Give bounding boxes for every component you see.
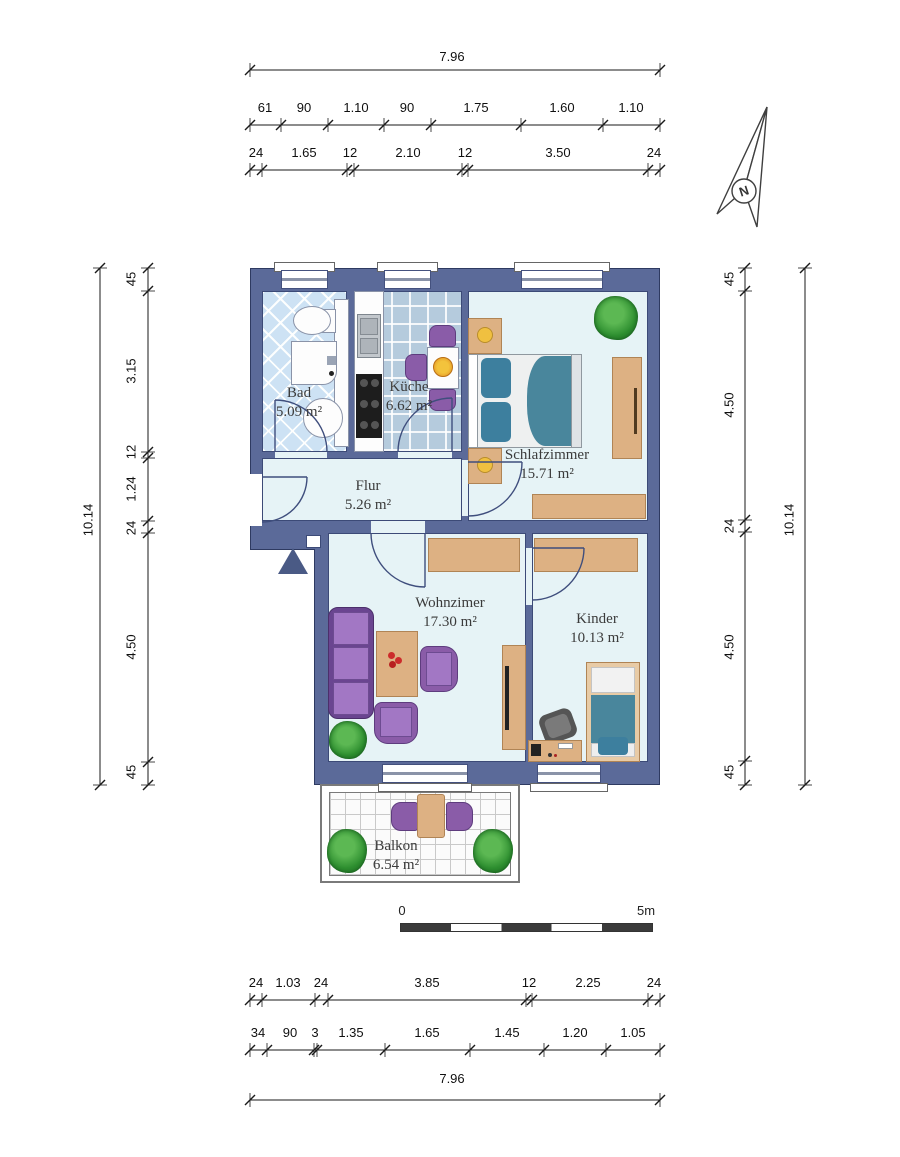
room-area: 6.62 m² bbox=[386, 398, 432, 414]
flower-dot-2 bbox=[395, 657, 402, 664]
kitchen-chair-bottom bbox=[429, 389, 456, 411]
window-kinder bbox=[537, 764, 601, 783]
bed-headboard bbox=[468, 354, 478, 448]
dim-label: 90 bbox=[283, 1026, 297, 1039]
dim-top-total: 7.96 bbox=[439, 50, 464, 63]
flower-dot-1 bbox=[388, 652, 395, 659]
balcony-door-sill bbox=[378, 783, 472, 792]
laptop-icon bbox=[531, 744, 541, 756]
dim-label: 24 bbox=[249, 146, 263, 159]
north-label: N bbox=[737, 182, 751, 199]
dim-label: 1.10 bbox=[343, 101, 368, 114]
room-name: Balkon bbox=[374, 838, 417, 854]
dim-label: 2.10 bbox=[395, 146, 420, 159]
door-entry-opening bbox=[250, 474, 262, 526]
window-bad bbox=[281, 270, 328, 289]
room-name: Schlafzimmer bbox=[505, 447, 589, 463]
drain-dot-icon bbox=[329, 371, 334, 376]
room-name: Wohnzimer bbox=[415, 595, 485, 611]
dim-label: 24 bbox=[125, 521, 138, 535]
bed-footboard bbox=[571, 354, 582, 448]
plant-balcony-left-icon bbox=[327, 829, 367, 873]
room-label-balkon: Balkon 6.54 m² bbox=[373, 837, 419, 875]
dim-label: 1.20 bbox=[562, 1026, 587, 1039]
tv-icon bbox=[505, 666, 509, 730]
scale-bar bbox=[400, 923, 653, 932]
room-area: 5.09 m² bbox=[276, 404, 322, 420]
balcony-door bbox=[382, 764, 468, 783]
dim-label: 4.50 bbox=[723, 634, 736, 659]
dim-label: 90 bbox=[297, 101, 311, 114]
wardrobe-handle bbox=[634, 388, 637, 434]
coffee-table bbox=[376, 631, 418, 697]
dim-right-total: 10.14 bbox=[783, 504, 796, 537]
exterior-cutout bbox=[250, 549, 315, 785]
balcony-table bbox=[417, 794, 445, 838]
wall-niche bbox=[306, 535, 321, 548]
room-area: 10.13 m² bbox=[570, 630, 624, 646]
balcony-chair-right bbox=[446, 802, 473, 831]
plant-balcony-right-icon bbox=[473, 829, 513, 873]
dim-label: 1.10 bbox=[618, 101, 643, 114]
dim-label: 24 bbox=[723, 519, 736, 533]
dim-label: 1.35 bbox=[338, 1026, 363, 1039]
dim-label: 90 bbox=[400, 101, 414, 114]
room-label-kueche: Küche 6.62 m² bbox=[386, 378, 432, 416]
plant-schlafzimmer-icon bbox=[594, 296, 638, 340]
wardrobe-kinder bbox=[534, 538, 638, 572]
dim-label: 12 bbox=[125, 445, 138, 459]
toilet-icon bbox=[293, 306, 331, 335]
dim-label: 4.50 bbox=[125, 634, 138, 659]
room-area: 6.54 m² bbox=[373, 857, 419, 873]
armchair-right-seat bbox=[426, 652, 452, 686]
dim-label: 45 bbox=[723, 272, 736, 286]
dim-label: 45 bbox=[125, 272, 138, 286]
window-kinder-sill bbox=[530, 783, 608, 792]
dim-bottom-total: 7.96 bbox=[439, 1072, 464, 1085]
room-label-wohnzimmer: Wohnzimer 17.30 m² bbox=[415, 594, 485, 632]
sofa-cushion-3 bbox=[333, 682, 369, 715]
lamp-bottom-icon bbox=[477, 457, 493, 473]
kids-bed-blanket bbox=[591, 695, 635, 743]
scale-start-label: 0 bbox=[398, 904, 405, 917]
lamp-top-icon bbox=[477, 327, 493, 343]
dim-label: 12 bbox=[343, 146, 357, 159]
room-name: Küche bbox=[389, 379, 428, 395]
desk-dot-1 bbox=[548, 753, 552, 757]
dim-left-total: 10.14 bbox=[82, 504, 95, 537]
pillow-1 bbox=[481, 358, 511, 398]
dim-label: 24 bbox=[647, 976, 661, 989]
dim-label: 61 bbox=[258, 101, 272, 114]
dim-label: 24 bbox=[314, 976, 328, 989]
door-bad-opening bbox=[275, 452, 327, 458]
dim-label: 12 bbox=[458, 146, 472, 159]
kitchen-chair-left bbox=[405, 354, 427, 381]
room-area: 5.26 m² bbox=[345, 497, 391, 513]
dim-label: 24 bbox=[249, 976, 263, 989]
flower-dot-3 bbox=[389, 661, 396, 668]
sink-bowl-1 bbox=[360, 318, 378, 335]
room-name: Flur bbox=[355, 478, 380, 494]
dresser-schlafzimmer bbox=[532, 494, 646, 519]
dim-label: 1.03 bbox=[275, 976, 300, 989]
paper-icon bbox=[558, 743, 573, 749]
kitchen-chair-top bbox=[429, 325, 456, 347]
dim-label: 24 bbox=[647, 146, 661, 159]
room-label-flur: Flur 5.26 m² bbox=[345, 477, 391, 515]
armchair-bottom-seat bbox=[380, 707, 412, 737]
room-name: Kinder bbox=[576, 611, 618, 627]
dim-label: 1.60 bbox=[549, 101, 574, 114]
dim-label: 4.50 bbox=[723, 392, 736, 417]
dim-label: 2.25 bbox=[575, 976, 600, 989]
room-label-schlafzimmer: Schlafzimmer 15.71 m² bbox=[505, 446, 589, 484]
dim-label: 12 bbox=[522, 976, 536, 989]
dim-label: 45 bbox=[723, 765, 736, 779]
burner-3 bbox=[360, 400, 368, 408]
sofa-cushion-2 bbox=[333, 647, 369, 680]
window-kueche bbox=[384, 270, 431, 289]
plant-wohnzimmer-icon bbox=[329, 721, 367, 759]
faucet-icon bbox=[327, 356, 336, 365]
room-label-bad: Bad 5.09 m² bbox=[276, 384, 322, 422]
floor-plan-canvas: N 0 5m Bad 5.09 m² Küche 6.62 m² Schlafz… bbox=[0, 0, 900, 1157]
balcony-chair-left bbox=[391, 802, 418, 831]
burner-1 bbox=[360, 379, 368, 387]
dim-label: 1.05 bbox=[620, 1026, 645, 1039]
burner-6 bbox=[371, 421, 379, 429]
dim-label: 1.24 bbox=[125, 476, 138, 501]
desk-dot-2 bbox=[554, 754, 557, 757]
room-name: Bad bbox=[287, 385, 311, 401]
dim-label: 1.65 bbox=[291, 146, 316, 159]
door-wohnzimmer-opening bbox=[371, 521, 425, 533]
wardrobe-schlafzimmer bbox=[612, 357, 642, 459]
burner-4 bbox=[371, 400, 379, 408]
burner-5 bbox=[360, 421, 368, 429]
north-arrow-icon bbox=[717, 107, 767, 227]
sink-bowl-2 bbox=[360, 338, 378, 354]
dim-label: 45 bbox=[125, 765, 138, 779]
burner-2 bbox=[371, 379, 379, 387]
window-schlafzimmer bbox=[521, 270, 603, 289]
door-kinder-opening bbox=[526, 548, 532, 605]
scale-end-label: 5m bbox=[637, 904, 655, 917]
dim-label: 3 bbox=[311, 1026, 318, 1039]
sideboard-wohnzimmer bbox=[428, 538, 520, 572]
dim-label: 3.85 bbox=[414, 976, 439, 989]
dim-label: 1.45 bbox=[494, 1026, 519, 1039]
dim-label: 3.50 bbox=[545, 146, 570, 159]
sofa-cushion-1 bbox=[333, 612, 369, 645]
kids-bed-pillow bbox=[591, 667, 635, 693]
kids-bed-cushion bbox=[598, 737, 628, 755]
dim-label: 3.15 bbox=[125, 358, 138, 383]
dim-label: 1.75 bbox=[463, 101, 488, 114]
room-area: 15.71 m² bbox=[520, 466, 574, 482]
entrance-arrow-icon bbox=[278, 548, 308, 574]
dim-label: 34 bbox=[251, 1026, 265, 1039]
room-label-kinder: Kinder 10.13 m² bbox=[570, 610, 624, 648]
pillow-2 bbox=[481, 402, 511, 442]
pizza-icon bbox=[433, 357, 453, 377]
bed-blanket bbox=[527, 356, 571, 446]
door-kueche-opening bbox=[398, 452, 452, 458]
dim-label: 1.65 bbox=[414, 1026, 439, 1039]
room-area: 17.30 m² bbox=[423, 614, 477, 630]
